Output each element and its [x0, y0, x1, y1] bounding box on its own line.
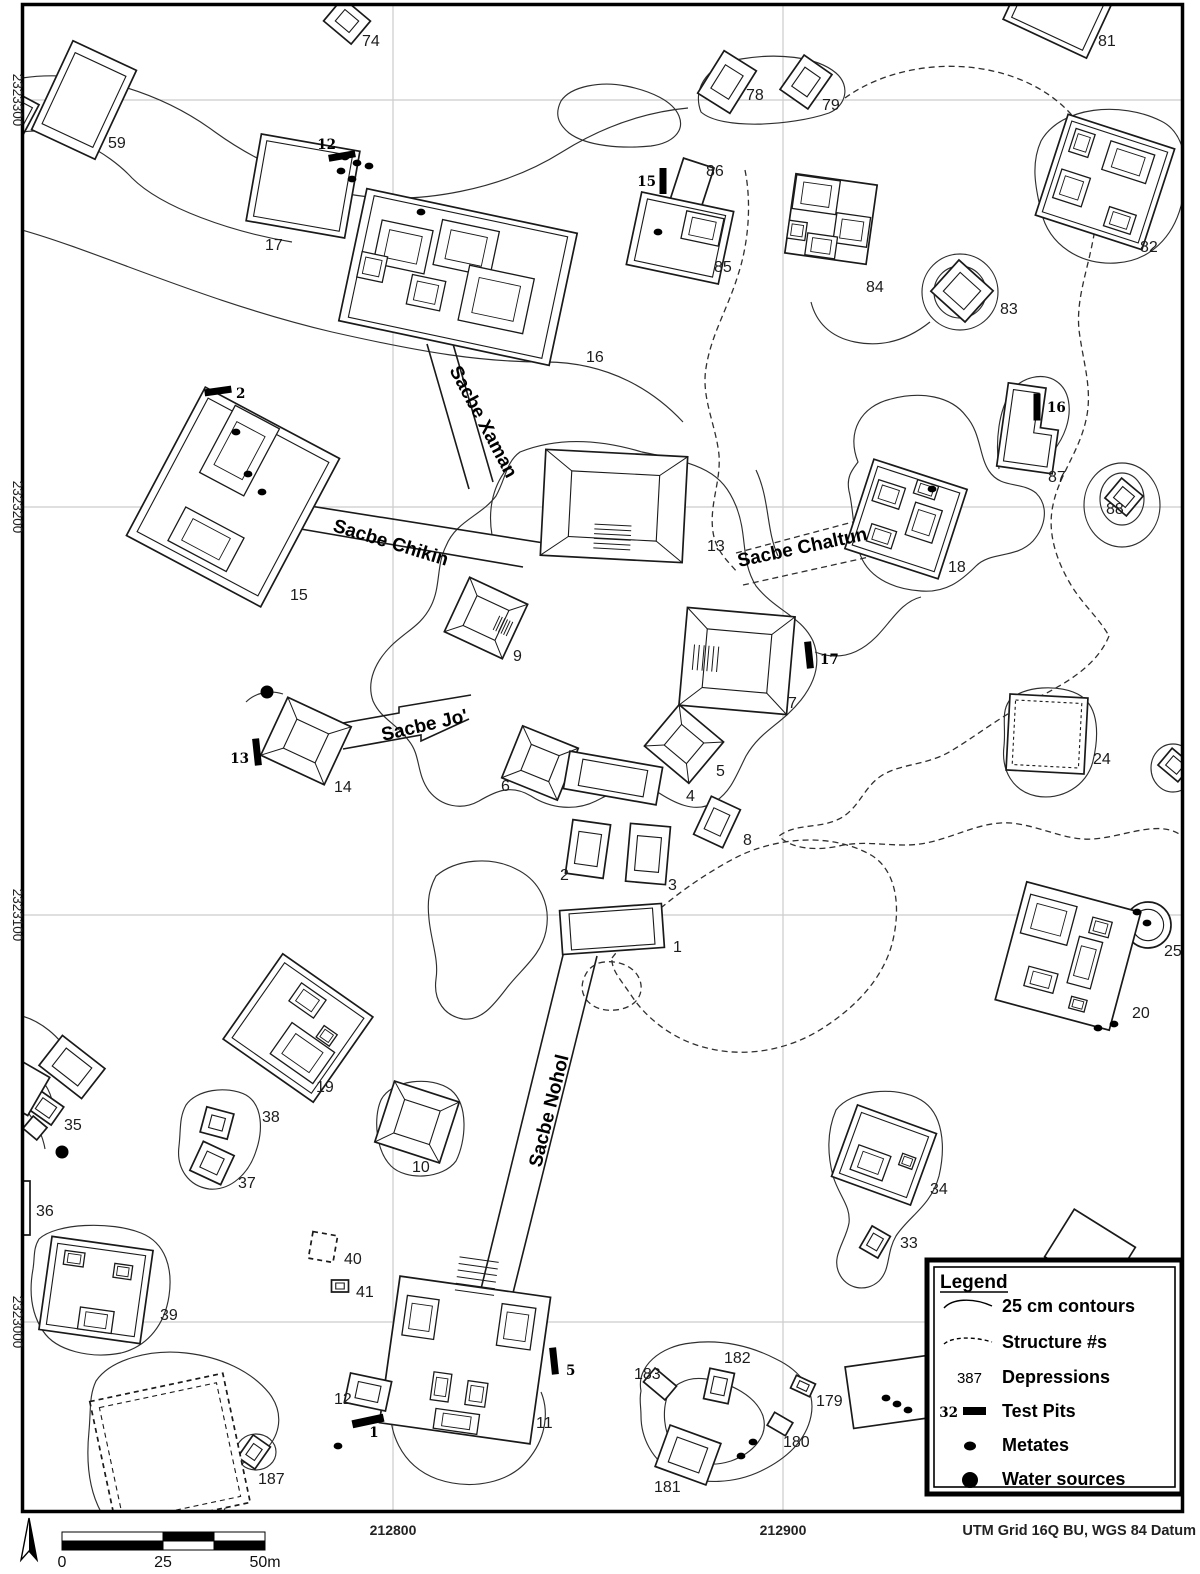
legend-label: Depressions — [1002, 1367, 1110, 1387]
sacbe-nohol-label: Sacbe Nohol — [525, 1052, 573, 1169]
northing-label-2323100: 2323100 — [10, 889, 25, 942]
structure-41 — [332, 1280, 349, 1292]
structure-label-1: 1 — [673, 939, 682, 956]
structure-1 — [560, 903, 665, 954]
structure-9 — [444, 577, 527, 658]
structure-182 — [704, 1368, 735, 1404]
structure-179 — [791, 1375, 816, 1397]
structure-label-36: 36 — [36, 1203, 54, 1220]
structure-label-182: 182 — [724, 1350, 751, 1367]
structure-37 — [190, 1141, 234, 1184]
structure-label-7: 7 — [788, 695, 797, 712]
structure-label-81: 81 — [1098, 33, 1116, 50]
metate-dot — [337, 168, 346, 175]
structure-label-79: 79 — [822, 97, 840, 114]
structure-38 — [200, 1107, 234, 1139]
structure-label-83: 83 — [1000, 301, 1018, 318]
north-arrow-icon — [21, 1518, 37, 1560]
structure-84 — [785, 174, 877, 265]
structure-label-87: 87 — [1048, 469, 1066, 486]
structure-unlabeled-53 — [845, 1356, 935, 1429]
svg-text:387: 387 — [957, 1370, 982, 1387]
structure-label-86: 86 — [706, 163, 724, 180]
structure-label-11: 11 — [536, 1415, 553, 1432]
test-pit-16: 16 — [1034, 394, 1066, 421]
structure-87 — [997, 383, 1064, 474]
structure-label-24: 24 — [1093, 751, 1111, 768]
water-source-dot — [261, 686, 274, 699]
structure-label-2: 2 — [560, 867, 569, 884]
structure-label-5: 5 — [716, 763, 725, 780]
test-pit-17: 17 — [804, 641, 839, 669]
northing-label-2323200: 2323200 — [10, 481, 25, 534]
legend-title: Legend — [940, 1272, 1008, 1293]
structure-16 — [339, 189, 577, 366]
structure-label-41: 41 — [356, 1284, 374, 1301]
svg-text:16: 16 — [1047, 400, 1066, 416]
structure-8 — [694, 796, 741, 848]
structure-label-13: 13 — [707, 538, 725, 555]
structure-13 — [540, 449, 687, 562]
metate-dot — [232, 429, 241, 436]
structure-label-78: 78 — [746, 87, 764, 104]
structure-label-15: 15 — [290, 587, 308, 604]
edge-label-29: 29 — [1186, 1361, 1200, 1378]
structure-label-12: 12 — [334, 1391, 352, 1408]
northing-label-2323300: 2323300 — [10, 74, 25, 127]
metate-dot — [928, 486, 937, 493]
metate-dot — [417, 209, 426, 216]
structure-20 — [995, 882, 1141, 1030]
structure-unlabeled-21 — [1158, 748, 1192, 782]
structure-label-179: 179 — [816, 1393, 843, 1410]
svg-text:1: 1 — [369, 1425, 378, 1441]
structure-24 — [1006, 694, 1088, 774]
structure-34 — [832, 1105, 937, 1205]
structure-label-9: 9 — [513, 648, 522, 665]
structure-83 — [931, 260, 993, 322]
svg-text:2: 2 — [236, 386, 245, 402]
structure-11 — [379, 1249, 554, 1444]
structure-19 — [223, 954, 373, 1102]
metate-dot — [893, 1401, 902, 1408]
metate-dot — [341, 154, 350, 161]
structure-181 — [655, 1425, 721, 1485]
svg-text:17: 17 — [820, 652, 839, 668]
easting-label-212800: 212800 — [370, 1522, 417, 1538]
metate-dot — [348, 176, 357, 183]
test-pit-5: 5 — [549, 1347, 575, 1379]
scale-bar: 0 25 50m — [58, 1532, 281, 1571]
metate-dot — [749, 1439, 758, 1446]
structure-2 — [565, 820, 610, 879]
structure-label-39: 39 — [160, 1307, 178, 1324]
structure-3 — [626, 823, 671, 884]
svg-text:32: 32 — [939, 1405, 958, 1421]
structure-label-85: 85 — [714, 259, 732, 276]
structure-7 — [679, 607, 795, 714]
structure-180 — [767, 1412, 793, 1435]
water-source-dot — [56, 1146, 69, 1159]
structure-label-19: 19 — [316, 1079, 334, 1096]
structure-label-37: 37 — [238, 1175, 256, 1192]
structure-label-88: 88 — [1106, 501, 1124, 518]
svg-text:12: 12 — [317, 137, 336, 153]
structure-39 — [39, 1236, 153, 1343]
legend-row-num: 387Depressions — [957, 1367, 1110, 1387]
site-map: 1221516171351 Sacbe Xaman Sacbe Chikin S… — [0, 0, 1200, 1574]
structure-10 — [375, 1081, 459, 1163]
metate-dot — [258, 489, 267, 496]
structure-label-34: 34 — [930, 1181, 948, 1198]
metate-dot — [654, 229, 663, 236]
metate-dot — [882, 1395, 891, 1402]
metate-dot — [1110, 1021, 1119, 1028]
structure-label-18: 18 — [948, 559, 966, 576]
structure-label-180: 180 — [783, 1434, 810, 1451]
test-pit-1: 1 — [352, 1414, 385, 1441]
sacbe-chaltun-label: Sacbe Chaltun — [736, 524, 869, 572]
datum-note: UTM Grid 16Q BU, WGS 84 Datum — [962, 1523, 1196, 1539]
legend-label: Test Pits — [1002, 1401, 1076, 1421]
metate-dot — [1094, 1025, 1103, 1032]
test-pit-13: 13 — [230, 738, 262, 767]
structure-label-74: 74 — [362, 33, 380, 50]
svg-text:13: 13 — [230, 751, 249, 767]
metate-dot — [244, 471, 253, 478]
structure-label-187: 187 — [258, 1471, 285, 1488]
structure-label-84: 84 — [866, 279, 884, 296]
structure-label-33: 33 — [900, 1235, 918, 1252]
northing-label-2323000: 2323000 — [10, 1296, 25, 1349]
easting-label-212900: 212900 — [760, 1522, 807, 1538]
legend-label: Structure #s — [1002, 1332, 1107, 1352]
legend: Legend25 cm contoursStructure #s387Depre… — [927, 1260, 1182, 1494]
metate-dot — [904, 1407, 913, 1414]
test-pit-15: 15 — [637, 168, 666, 194]
structure-unlabeled-52 — [90, 1373, 250, 1530]
structure-label-59: 59 — [108, 135, 126, 152]
sacbe-chikin-label: Sacbe Chikin — [331, 516, 451, 571]
structure-label-38: 38 — [262, 1109, 280, 1126]
structure-4 — [563, 751, 662, 805]
legend-label: Water sources — [1002, 1469, 1125, 1489]
scale-label-50m: 50m — [249, 1554, 280, 1571]
svg-text:5: 5 — [566, 1363, 575, 1379]
metate-dot — [353, 160, 362, 167]
structure-35 — [39, 1035, 105, 1098]
legend-label: 25 cm contours — [1002, 1296, 1135, 1316]
structure-40 — [308, 1232, 337, 1263]
metate-dot — [1133, 909, 1142, 916]
map-canvas: 1221516171351 Sacbe Xaman Sacbe Chikin S… — [0, 0, 1200, 1574]
metate-dot — [1143, 920, 1152, 927]
structure-label-82: 82 — [1140, 239, 1158, 256]
structure-label-14: 14 — [334, 779, 352, 796]
structure-label-4: 4 — [686, 788, 695, 805]
svg-text:15: 15 — [637, 174, 656, 190]
structure-label-16: 16 — [586, 349, 604, 366]
scale-label-0: 0 — [58, 1554, 67, 1571]
structure-label-20: 20 — [1132, 1005, 1150, 1022]
structure-label-6: 6 — [501, 778, 510, 795]
structure-label-40: 40 — [344, 1251, 362, 1268]
structure-label-8: 8 — [13, 137, 22, 154]
sacbe-xaman-label: Sacbe Xaman — [445, 362, 522, 481]
structure-label-17: 17 — [265, 237, 283, 254]
legend-label: Metates — [1002, 1435, 1069, 1455]
structure-14 — [261, 697, 351, 785]
structure-label-183: 183 — [634, 1366, 661, 1383]
metate-dot — [365, 163, 374, 170]
structure-82 — [1035, 114, 1174, 249]
structure-label-10: 10 — [412, 1159, 430, 1176]
structure-17 — [246, 134, 360, 238]
structure-15 — [126, 387, 339, 607]
structure-label-25: 25 — [1164, 943, 1182, 960]
metate-dot — [737, 1453, 746, 1460]
structure-33 — [860, 1226, 891, 1258]
structure-label-181: 181 — [654, 1479, 681, 1496]
metate-dot — [334, 1443, 343, 1450]
structure-label-35: 35 — [64, 1117, 82, 1134]
structure-label-8: 8 — [743, 832, 752, 849]
scale-label-25: 25 — [154, 1554, 172, 1571]
structure-label-3: 3 — [668, 877, 677, 894]
